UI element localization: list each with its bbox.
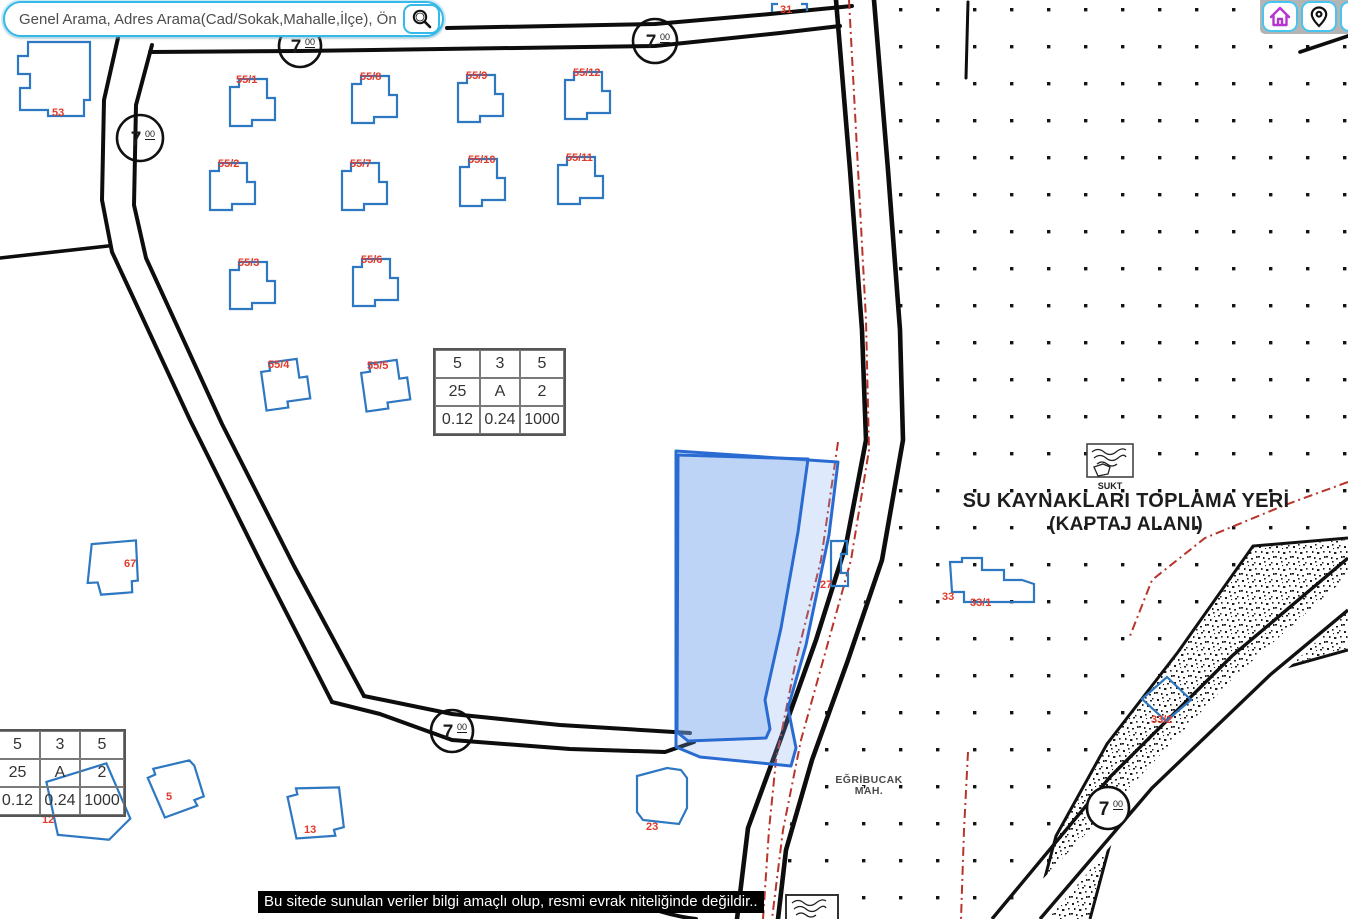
map-toolbar [1260, 0, 1348, 34]
parcel-label: 33 [942, 591, 954, 603]
water-area-label: SU KAYNAKLARI TOPLAMA YERİ (KAPTAJ ALANI… [952, 490, 1300, 536]
selected-parcel-highlight[interactable] [676, 451, 838, 766]
water-area-line2: (KAPTAJ ALANI) [952, 513, 1300, 536]
table-cell: 1000 [520, 406, 564, 434]
parcel-label: 33/2 [1151, 714, 1172, 726]
parcel-label: 55/1 [236, 74, 257, 86]
search-bar [3, 1, 444, 37]
road-width-sup: 00 [145, 129, 155, 139]
parcel-outline [352, 76, 397, 123]
road-width-value: 7 [131, 129, 142, 150]
parcel-outline [342, 163, 387, 210]
map-canvas[interactable]: 53 55/1 55/8 55/9 55/12 55/2 55/7 55/10 … [0, 0, 1348, 919]
table-cell: 25 [435, 378, 480, 406]
parcel-outline [210, 163, 255, 210]
search-icon [411, 8, 433, 30]
table-cell: 2 [80, 759, 124, 787]
table-cell: 0.12 [435, 406, 480, 434]
clipped-edge-button[interactable] [1340, 1, 1348, 32]
parcel-label: 55/9 [466, 70, 487, 82]
parcel-label: 55/4 [268, 359, 290, 371]
parcel-label: 23 [646, 821, 658, 833]
search-button[interactable] [403, 4, 440, 34]
parcel-label: 13 [304, 824, 316, 836]
home-icon [1268, 5, 1292, 29]
parcel-outline [558, 157, 603, 204]
table-cell: 5 [0, 731, 40, 759]
disclaimer-bar: Bu sitede sunulan veriler bilgi amaçlı o… [258, 891, 764, 913]
table-cell: 3 [480, 350, 520, 378]
table-cell: 3 [40, 731, 80, 759]
table-cell: A [40, 759, 80, 787]
road-width-value: 7 [443, 722, 454, 743]
table-cell: 0.24 [480, 406, 520, 434]
table-cell: 5 [80, 731, 124, 759]
parcel-label: 33/1 [970, 597, 991, 609]
district-label: EĞRİBUCAK MAH. [826, 775, 912, 797]
parcel-label: 55/12 [573, 67, 601, 79]
table-cell: 1000 [80, 787, 124, 815]
parcel-outline [458, 75, 503, 122]
parcel-23-outline [637, 768, 687, 824]
district-line2: MAH. [826, 786, 912, 797]
search-input[interactable] [7, 11, 403, 28]
table-cell: 0.24 [40, 787, 80, 815]
road-width-sup: 00 [457, 722, 467, 732]
road-width-value: 7 [291, 37, 302, 58]
road-width-sup: 00 [305, 37, 315, 47]
parcel-outline [460, 159, 505, 206]
map-viewer: 53 55/1 55/8 55/9 55/12 55/2 55/7 55/10 … [0, 0, 1348, 919]
parcel-outline [353, 259, 398, 306]
parcel-label: 55/2 [218, 158, 239, 170]
parcel-5-outline [146, 759, 206, 819]
road-width-value: 7 [646, 32, 657, 53]
parcel-label: 27 [820, 579, 832, 591]
water-area-line1: SU KAYNAKLARI TOPLAMA YERİ [952, 490, 1300, 513]
parcel-outline [230, 79, 275, 126]
parcel-label: 55/5 [367, 360, 388, 372]
home-button[interactable] [1262, 1, 1298, 32]
parcel-label: 53 [52, 107, 64, 119]
water-symbol-bottom [786, 895, 838, 919]
road-width-value: 7 [1099, 799, 1110, 820]
table-cell: 5 [520, 350, 564, 378]
table-cell: 25 [0, 759, 40, 787]
location-pin-icon [1307, 5, 1331, 29]
table-cell: A [480, 378, 520, 406]
parcel-label: 5 [166, 791, 172, 803]
parcel-53-outline [18, 42, 90, 116]
parcel-label: 31 [780, 4, 792, 16]
parcel-info-table: 5 3 5 25 A 2 0.12 0.24 1000 [0, 729, 126, 817]
parcel-label: 55/7 [350, 158, 371, 170]
table-cell: 5 [435, 350, 480, 378]
parcel-label: 67 [124, 558, 136, 570]
road-width-sup: 00 [1113, 799, 1123, 809]
location-button[interactable] [1301, 1, 1337, 32]
parcel-label: 55/10 [468, 154, 496, 166]
parcel-info-table: 5 3 5 25 A 2 0.12 0.24 1000 [433, 348, 566, 436]
parcel-label: 55/11 [566, 152, 593, 164]
road-width-sup: 00 [660, 32, 670, 42]
parcel-label: 55/3 [238, 257, 259, 269]
parcel-label: 55/6 [361, 254, 382, 266]
table-cell: 2 [520, 378, 564, 406]
parcel-outline [565, 72, 610, 119]
parcel-outline [230, 262, 275, 309]
parcel-label: 55/8 [360, 71, 381, 83]
table-cell: 0.12 [0, 787, 40, 815]
